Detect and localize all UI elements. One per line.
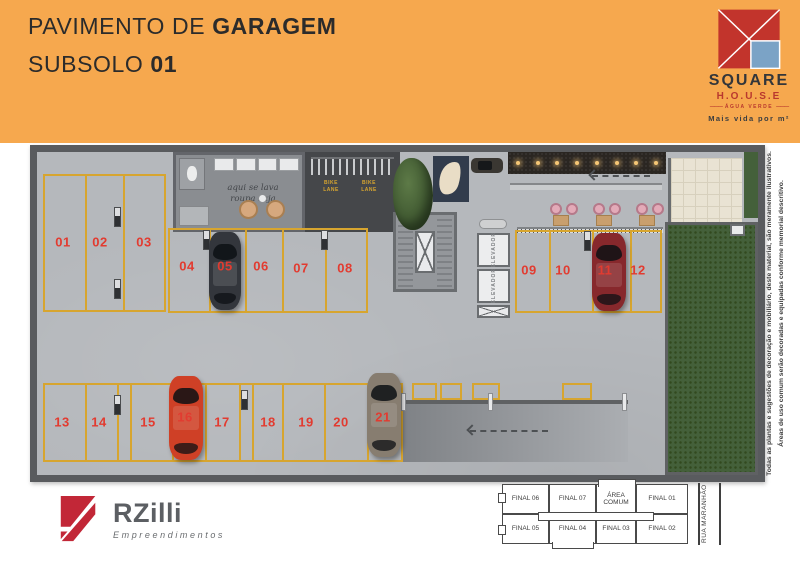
moto-spot bbox=[412, 383, 437, 400]
laundry-machines bbox=[214, 158, 299, 171]
ramp-post bbox=[401, 393, 406, 411]
drive-direction-arrow bbox=[592, 175, 650, 177]
ceiling-light-icon bbox=[615, 161, 619, 165]
lounge-chair bbox=[266, 200, 285, 219]
elevator-label: ELEVADOR bbox=[491, 232, 497, 267]
key-plan-cell: FINAL 01 bbox=[636, 484, 688, 514]
parking-spot-03: 03 bbox=[136, 235, 151, 250]
parking-spot-02: 02 bbox=[92, 235, 107, 250]
brand-house: H.O.U.S.E bbox=[704, 91, 794, 102]
stool bbox=[550, 203, 562, 215]
stool bbox=[566, 203, 578, 215]
stall-divider bbox=[324, 385, 326, 460]
pillar bbox=[321, 230, 328, 250]
ceiling-light-icon bbox=[516, 161, 520, 165]
key-plan-tab bbox=[498, 493, 506, 503]
stool bbox=[593, 203, 605, 215]
unit-key-plan: FINAL 06 FINAL 07 ÁREA COMUM FINAL 01 FI… bbox=[502, 479, 688, 549]
garage-floor-plan: aqui se lava roupa suja BIKE LANE BIKE L… bbox=[30, 145, 765, 482]
street-name: RUA MARANHÃO bbox=[701, 483, 718, 545]
disclaimer-line1: Todas as plantas e sugestões de decoraçã… bbox=[764, 145, 776, 482]
bike-parking-area: BIKE LANE BIKE LANE bbox=[305, 152, 400, 232]
ceiling-light-icon bbox=[536, 161, 540, 165]
legal-disclaimer: Todas as plantas e sugestões de decoraçã… bbox=[764, 145, 787, 482]
ramp-post bbox=[488, 393, 493, 411]
pillar bbox=[114, 279, 121, 299]
title-line2-regular: SUBSOLO bbox=[28, 51, 143, 77]
stool bbox=[636, 203, 648, 215]
ramp-post bbox=[622, 393, 627, 411]
car-rear-window bbox=[214, 293, 236, 304]
stall-divider bbox=[205, 385, 207, 460]
developer-name: RZilli bbox=[113, 500, 225, 527]
planter-tree bbox=[393, 158, 433, 230]
laundry-counter bbox=[179, 206, 209, 226]
key-plan-bump bbox=[552, 542, 594, 549]
sculpture-icon bbox=[436, 159, 465, 197]
key-plan-cell: FINAL 07 bbox=[549, 484, 596, 514]
parking-spot-08: 08 bbox=[337, 261, 352, 276]
developer-text: RZilli Empreendimentos bbox=[113, 500, 225, 540]
ceiling-light-icon bbox=[595, 161, 599, 165]
brand-location: ÁGUA VERDE bbox=[704, 104, 794, 110]
pillar bbox=[114, 207, 121, 227]
key-plan-cell: ÁREA COMUM bbox=[596, 484, 636, 514]
elevator-1: ELEVADOR bbox=[477, 233, 510, 267]
stall-divider bbox=[130, 385, 132, 460]
elevator-block: ELEVADOR ELEVADOR bbox=[477, 233, 510, 318]
stall-divider bbox=[282, 230, 284, 311]
counter-table bbox=[553, 215, 569, 226]
grass-strip bbox=[744, 152, 758, 218]
parking-spot-05: 05 bbox=[217, 259, 232, 274]
moto-spot bbox=[472, 383, 500, 400]
disclaimer-line2: Áreas de uso comum serão decoradas e equ… bbox=[776, 145, 788, 482]
developer-logo: RZilli Empreendimentos bbox=[56, 494, 225, 546]
title-line-1: PAVIMENTO DEGARAGEM bbox=[28, 13, 337, 40]
parking-spot-16: 16 bbox=[177, 410, 192, 425]
entry-plaza-tiles bbox=[668, 158, 742, 222]
laundry-room: aqui se lava roupa suja bbox=[173, 152, 305, 232]
car-rear-window bbox=[597, 294, 621, 305]
parking-spot-18: 18 bbox=[260, 415, 275, 430]
stall-divider bbox=[549, 232, 551, 311]
square-house-logo-icon bbox=[717, 9, 781, 69]
key-plan-cell: FINAL 06 bbox=[502, 484, 549, 514]
bike-racks bbox=[311, 157, 394, 175]
key-plan-bump bbox=[598, 479, 636, 487]
entry-drive-ceiling bbox=[508, 152, 666, 174]
brand-name: SQUARE bbox=[704, 72, 794, 90]
parking-spot-10: 10 bbox=[555, 263, 570, 278]
parking-spot-20: 20 bbox=[333, 415, 348, 430]
pillar bbox=[241, 390, 248, 410]
bike-lane-label: BIKE LANE bbox=[357, 180, 381, 193]
car-windshield bbox=[371, 385, 397, 401]
toilet-icon bbox=[187, 166, 197, 181]
counter-table bbox=[596, 215, 612, 226]
stall-divider bbox=[252, 385, 254, 460]
pillar bbox=[114, 395, 121, 415]
sculpture-feature bbox=[433, 156, 469, 202]
key-plan-corridor bbox=[538, 512, 654, 521]
ramp-direction-arrow bbox=[470, 430, 548, 432]
car-windshield bbox=[596, 245, 622, 261]
parking-spot-12: 12 bbox=[630, 263, 645, 278]
elevator-label: ELEVADOR bbox=[491, 268, 497, 303]
toilet-room bbox=[179, 158, 205, 190]
stall-divider bbox=[85, 385, 87, 460]
car-rear-window bbox=[372, 440, 396, 451]
laundry-note-line1: aqui se lava bbox=[206, 183, 300, 194]
elevator-pit bbox=[477, 305, 510, 318]
elevator-2: ELEVADOR bbox=[477, 269, 510, 303]
title-line1-bold: GARAGEM bbox=[212, 13, 336, 39]
title-line-2: SUBSOLO01 bbox=[28, 51, 337, 78]
parking-spot-17: 17 bbox=[214, 415, 229, 430]
parked-car-top bbox=[471, 158, 503, 173]
title-line1-regular: PAVIMENTO DE bbox=[28, 13, 205, 39]
parking-spot-15: 15 bbox=[140, 415, 155, 430]
car-rear-window bbox=[174, 443, 198, 454]
lounge-chair bbox=[239, 200, 258, 219]
ceiling-light-icon bbox=[575, 161, 579, 165]
bike-lane-label: BIKE LANE bbox=[319, 180, 343, 193]
ceiling-light-icon bbox=[555, 161, 559, 165]
moto-spot bbox=[440, 383, 462, 400]
ceiling-light-icon bbox=[654, 161, 658, 165]
stool bbox=[609, 203, 621, 215]
parking-spot-09: 09 bbox=[521, 263, 536, 278]
stall-divider bbox=[282, 385, 284, 460]
stool bbox=[652, 203, 664, 215]
stall-divider bbox=[245, 230, 247, 311]
square-house-logo: SQUARE H.O.U.S.E ÁGUA VERDE Mais vida po… bbox=[704, 9, 794, 123]
stall-divider bbox=[85, 176, 87, 310]
parking-spot-21: 21 bbox=[375, 410, 390, 425]
title-line2-bold: 01 bbox=[150, 51, 177, 77]
car-windshield bbox=[173, 388, 199, 404]
ceiling-light-icon bbox=[634, 161, 638, 165]
garden-access-door bbox=[730, 224, 745, 236]
street-line bbox=[698, 483, 700, 545]
brand-tagline: Mais vida por m² bbox=[704, 114, 794, 123]
bench bbox=[479, 219, 507, 229]
parking-spot-01: 01 bbox=[55, 235, 70, 250]
developer-subtitle: Empreendimentos bbox=[113, 530, 225, 540]
stall-divider bbox=[123, 176, 125, 310]
header-band: PAVIMENTO DEGARAGEM SUBSOLO01 SQUARE H.O… bbox=[0, 0, 800, 143]
counter-table bbox=[639, 215, 655, 226]
parking-spot-14: 14 bbox=[91, 415, 106, 430]
moto-spot bbox=[562, 383, 592, 400]
stair-core bbox=[415, 231, 435, 273]
rzilli-logo-icon bbox=[56, 494, 102, 546]
parking-spot-06: 06 bbox=[253, 259, 268, 274]
drive-wall bbox=[510, 183, 662, 190]
parking-spot-04: 04 bbox=[179, 259, 194, 274]
pillar bbox=[584, 231, 591, 251]
key-plan-tab bbox=[498, 525, 506, 535]
side-table bbox=[258, 194, 267, 203]
parking-spot-11: 11 bbox=[598, 263, 613, 278]
stair-treads-right bbox=[437, 217, 452, 287]
parking-spot-07: 07 bbox=[293, 261, 308, 276]
parking-spot-19: 19 bbox=[298, 415, 313, 430]
parking-spot-13: 13 bbox=[54, 415, 69, 430]
street-line bbox=[719, 483, 721, 545]
garden bbox=[665, 222, 758, 475]
page-title: PAVIMENTO DEGARAGEM SUBSOLO01 bbox=[28, 13, 337, 89]
